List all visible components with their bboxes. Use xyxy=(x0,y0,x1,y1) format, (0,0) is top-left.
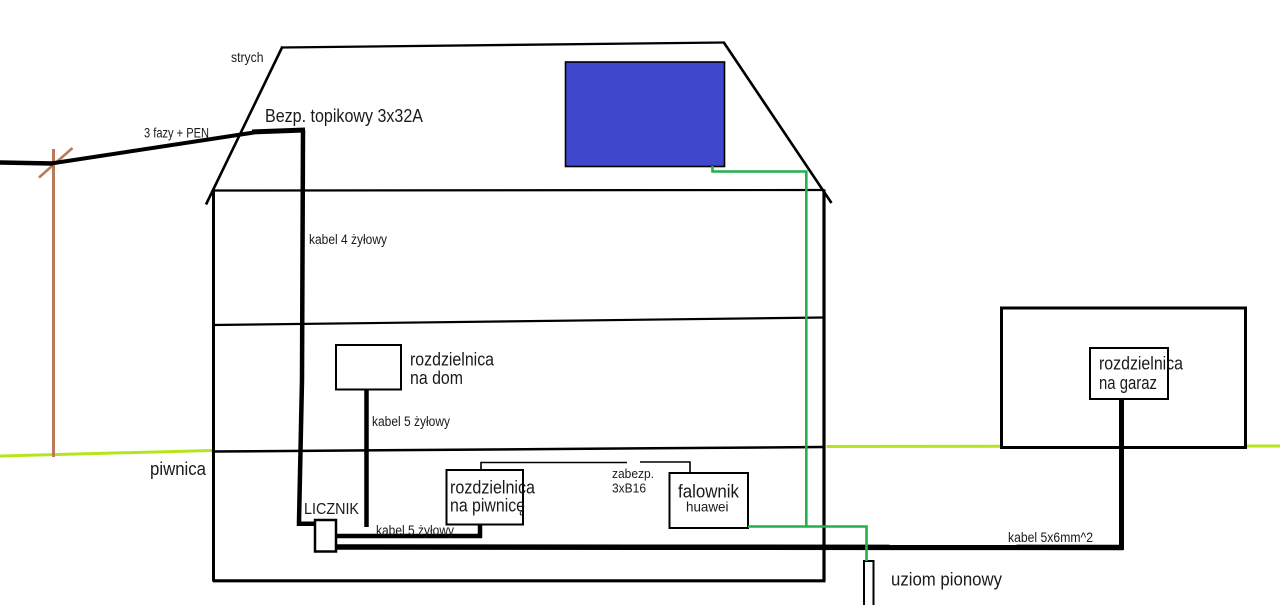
svg-text:LICZNIK: LICZNIK xyxy=(304,501,359,518)
svg-text:piwnica: piwnica xyxy=(150,459,207,479)
svg-text:na piwnicę: na piwnicę xyxy=(450,496,525,516)
svg-text:na garaz: na garaz xyxy=(1099,373,1157,393)
svg-text:kabel 5 żyłowy: kabel 5 żyłowy xyxy=(372,414,450,429)
svg-text:kabel 5x6mm^2: kabel 5x6mm^2 xyxy=(1008,530,1093,545)
svg-text:rozdzielnica: rozdzielnica xyxy=(410,350,495,370)
svg-text:uziom pionowy: uziom pionowy xyxy=(891,570,1002,590)
svg-text:na dom: na dom xyxy=(410,368,463,388)
svg-text:huawei: huawei xyxy=(686,499,729,515)
svg-text:rozdzielnica: rozdzielnica xyxy=(1099,354,1184,374)
svg-text:3 fazy + PEN: 3 fazy + PEN xyxy=(144,126,209,141)
svg-text:Bezp. topikowy 3x32A: Bezp. topikowy 3x32A xyxy=(265,106,423,126)
svg-text:3xB16: 3xB16 xyxy=(612,482,646,496)
svg-text:zabezp.: zabezp. xyxy=(612,467,654,481)
svg-text:kabel 4 żyłowy: kabel 4 żyłowy xyxy=(309,232,387,247)
svg-text:rozdzielnica: rozdzielnica xyxy=(450,478,536,498)
svg-text:strych: strych xyxy=(231,49,264,65)
svg-text:kabel 5 żyłowy: kabel 5 żyłowy xyxy=(376,523,454,538)
